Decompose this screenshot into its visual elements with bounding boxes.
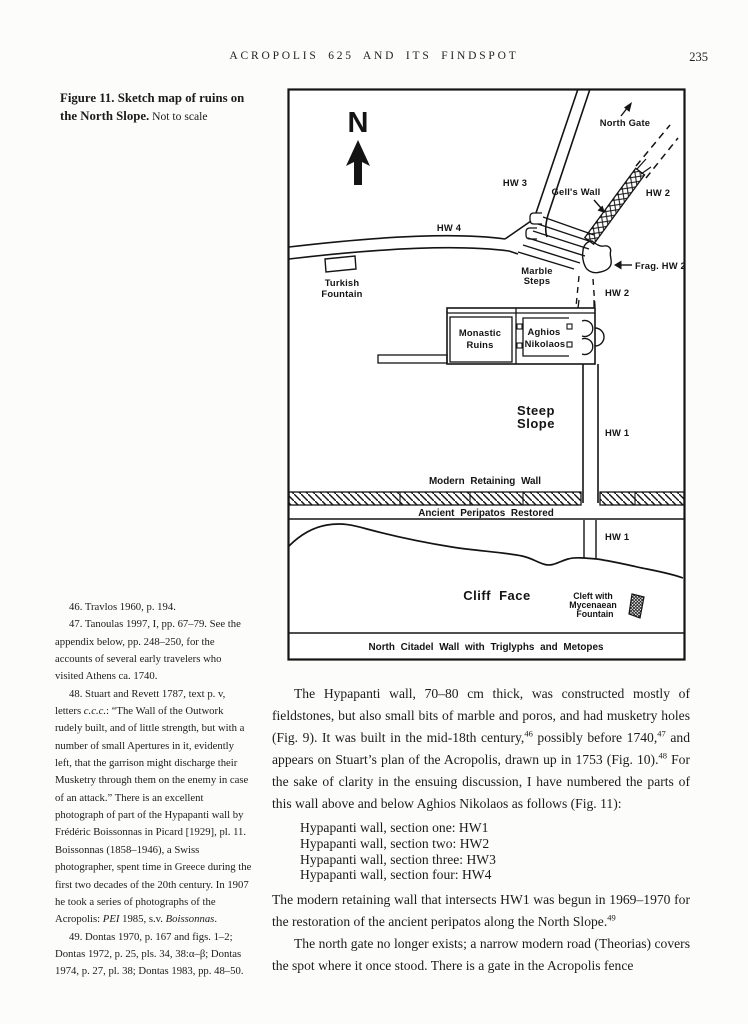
body-paragraph-3: The north gate no longer exists; a narro…: [272, 933, 690, 977]
map-label-gells-wall: Gell's Wall: [552, 186, 601, 197]
map-label-ancient-peripatos: Ancient Peripatos Restored: [418, 508, 554, 519]
map-label-monastic: Monastic: [459, 327, 501, 338]
map-label-cliff-face: Cliff Face: [463, 588, 531, 603]
modern-retaining-wall-band: [289, 492, 684, 505]
compass-north-label: N: [348, 107, 369, 139]
body-paragraph-2: The modern retaining wall that intersect…: [272, 889, 690, 933]
map-label-steps: Steps: [524, 275, 551, 286]
hw-list-item: Hypapanti wall, section one: HW1: [300, 820, 690, 836]
map-label-frag-hw2: Frag. HW 2: [635, 260, 686, 271]
running-head: ACROPOLIS 625 AND ITS FINDSPOT: [0, 50, 748, 62]
map-label-hw2-upper: HW 2: [646, 187, 670, 198]
hw-list-item: Hypapanti wall, section two: HW2: [300, 836, 690, 852]
map-label-turkish: Turkish: [325, 277, 360, 288]
map-label-ruins: Ruins: [466, 339, 493, 350]
map-label-cleft-3: Fountain: [576, 609, 613, 619]
map-label-hw1-upper: HW 1: [605, 427, 629, 438]
body-paragraph-1: The Hypapanti wall, 70–80 cm thick, was …: [272, 683, 690, 815]
body-text-column: The Hypapanti wall, 70–80 cm thick, was …: [272, 683, 690, 977]
map-label-hw1-lower: HW 1: [605, 531, 629, 542]
map-label-modern-retaining-wall: Modern Retaining Wall: [429, 476, 541, 487]
map-border: [289, 90, 685, 660]
footnote-47: 47. Tanoulas 1997, I, pp. 67–79. See the…: [55, 616, 252, 685]
map-label-hw2-mid: HW 2: [605, 287, 629, 298]
map-label-hw3: HW 3: [503, 177, 527, 188]
hw-list-item: Hypapanti wall, section four: HW4: [300, 867, 690, 883]
hw-list-item: Hypapanti wall, section three: HW3: [300, 852, 690, 868]
map-label-north-gate: North Gate: [600, 117, 650, 128]
map-label-hw4: HW 4: [437, 222, 462, 233]
map-label-fountain: Fountain: [321, 288, 362, 299]
footnote-48: 48. Stuart and Revett 1787, text p. v, l…: [55, 686, 252, 929]
map-label-aghios: Aghios: [528, 326, 561, 337]
map-label-slope: Slope: [517, 416, 555, 431]
footnote-46: 46. Travlos 1960, p. 194.: [55, 599, 252, 616]
footnotes-column: 46. Travlos 1960, p. 194. 47. Tanoulas 1…: [55, 599, 252, 981]
page-number: 235: [668, 50, 708, 65]
map-label-citadel-wall: North Citadel Wall with Triglyphs and Me…: [369, 642, 604, 653]
footnote-49: 49. Dontas 1970, p. 167 and figs. 1–2; D…: [55, 929, 252, 981]
sketch-map-figure: N: [287, 88, 686, 662]
figure-caption-note: Not to scale: [149, 110, 207, 123]
map-label-nikolaos: Nikolaos: [525, 338, 566, 349]
hw-section-list: Hypapanti wall, section one: HW1 Hypapan…: [300, 820, 690, 883]
figure-caption: Figure 11. Sketch map of ruins on the No…: [60, 90, 260, 125]
